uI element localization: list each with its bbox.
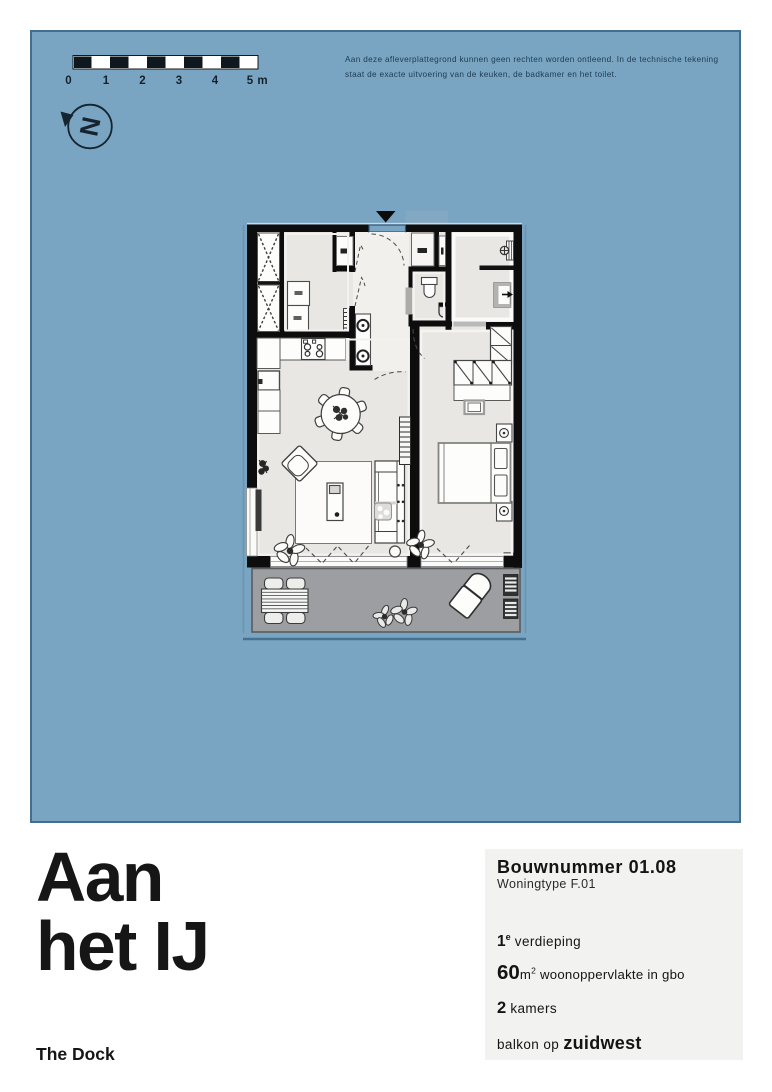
svg-text:m: m: [257, 75, 267, 87]
svg-text:N: N: [73, 114, 106, 139]
svg-text:2: 2: [139, 75, 145, 87]
svg-text:4: 4: [212, 75, 219, 87]
svg-text:staat de exacte uitvoering van: staat de exacte uitvoering van de keuken…: [345, 70, 617, 79]
svg-text:3: 3: [176, 75, 182, 87]
svg-text:1: 1: [103, 75, 110, 87]
svg-text:Aan deze afleverplattegrond ku: Aan deze afleverplattegrond kunnen geen …: [345, 55, 718, 64]
svg-text:5: 5: [247, 75, 254, 87]
svg-text:0: 0: [65, 75, 71, 87]
